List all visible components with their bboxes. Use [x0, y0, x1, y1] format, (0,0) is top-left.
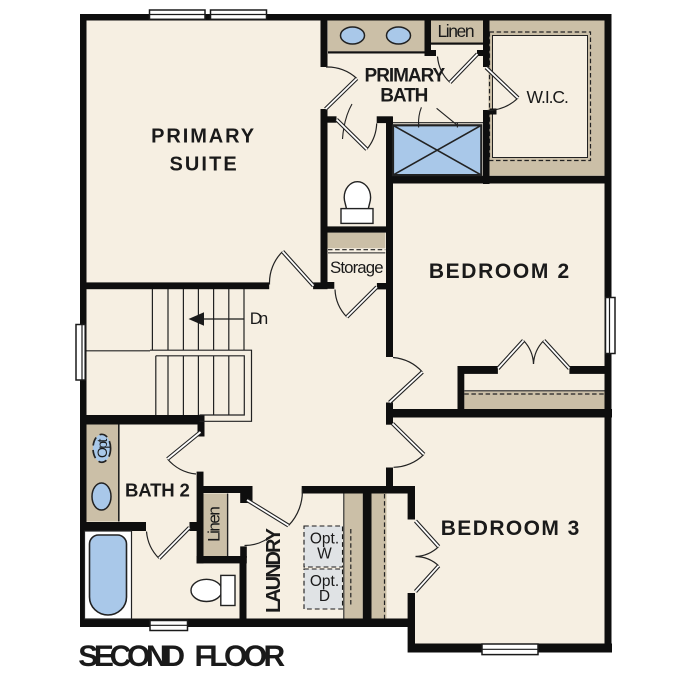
svg-text:BATH: BATH: [380, 85, 428, 106]
svg-text:W.I.C.: W.I.C.: [527, 87, 569, 107]
svg-text:Opt: Opt: [94, 438, 110, 458]
svg-text:D: D: [319, 588, 330, 605]
svg-text:LAUNDRY: LAUNDRY: [263, 527, 285, 613]
svg-text:SECOND: SECOND: [78, 640, 185, 673]
svg-text:Linen: Linen: [437, 21, 474, 41]
svg-text:W: W: [317, 546, 332, 563]
svg-text:PRIMARY: PRIMARY: [365, 65, 446, 86]
svg-text:BEDROOM 3: BEDROOM 3: [441, 517, 580, 540]
svg-text:BATH 2: BATH 2: [125, 480, 190, 501]
svg-text:Linen: Linen: [205, 506, 224, 542]
svg-text:SUITE: SUITE: [170, 153, 237, 175]
svg-text:Dn: Dn: [250, 309, 268, 328]
svg-text:FLOOR: FLOOR: [195, 640, 286, 673]
svg-text:BEDROOM 2: BEDROOM 2: [429, 260, 569, 283]
svg-text:Storage: Storage: [330, 258, 384, 277]
